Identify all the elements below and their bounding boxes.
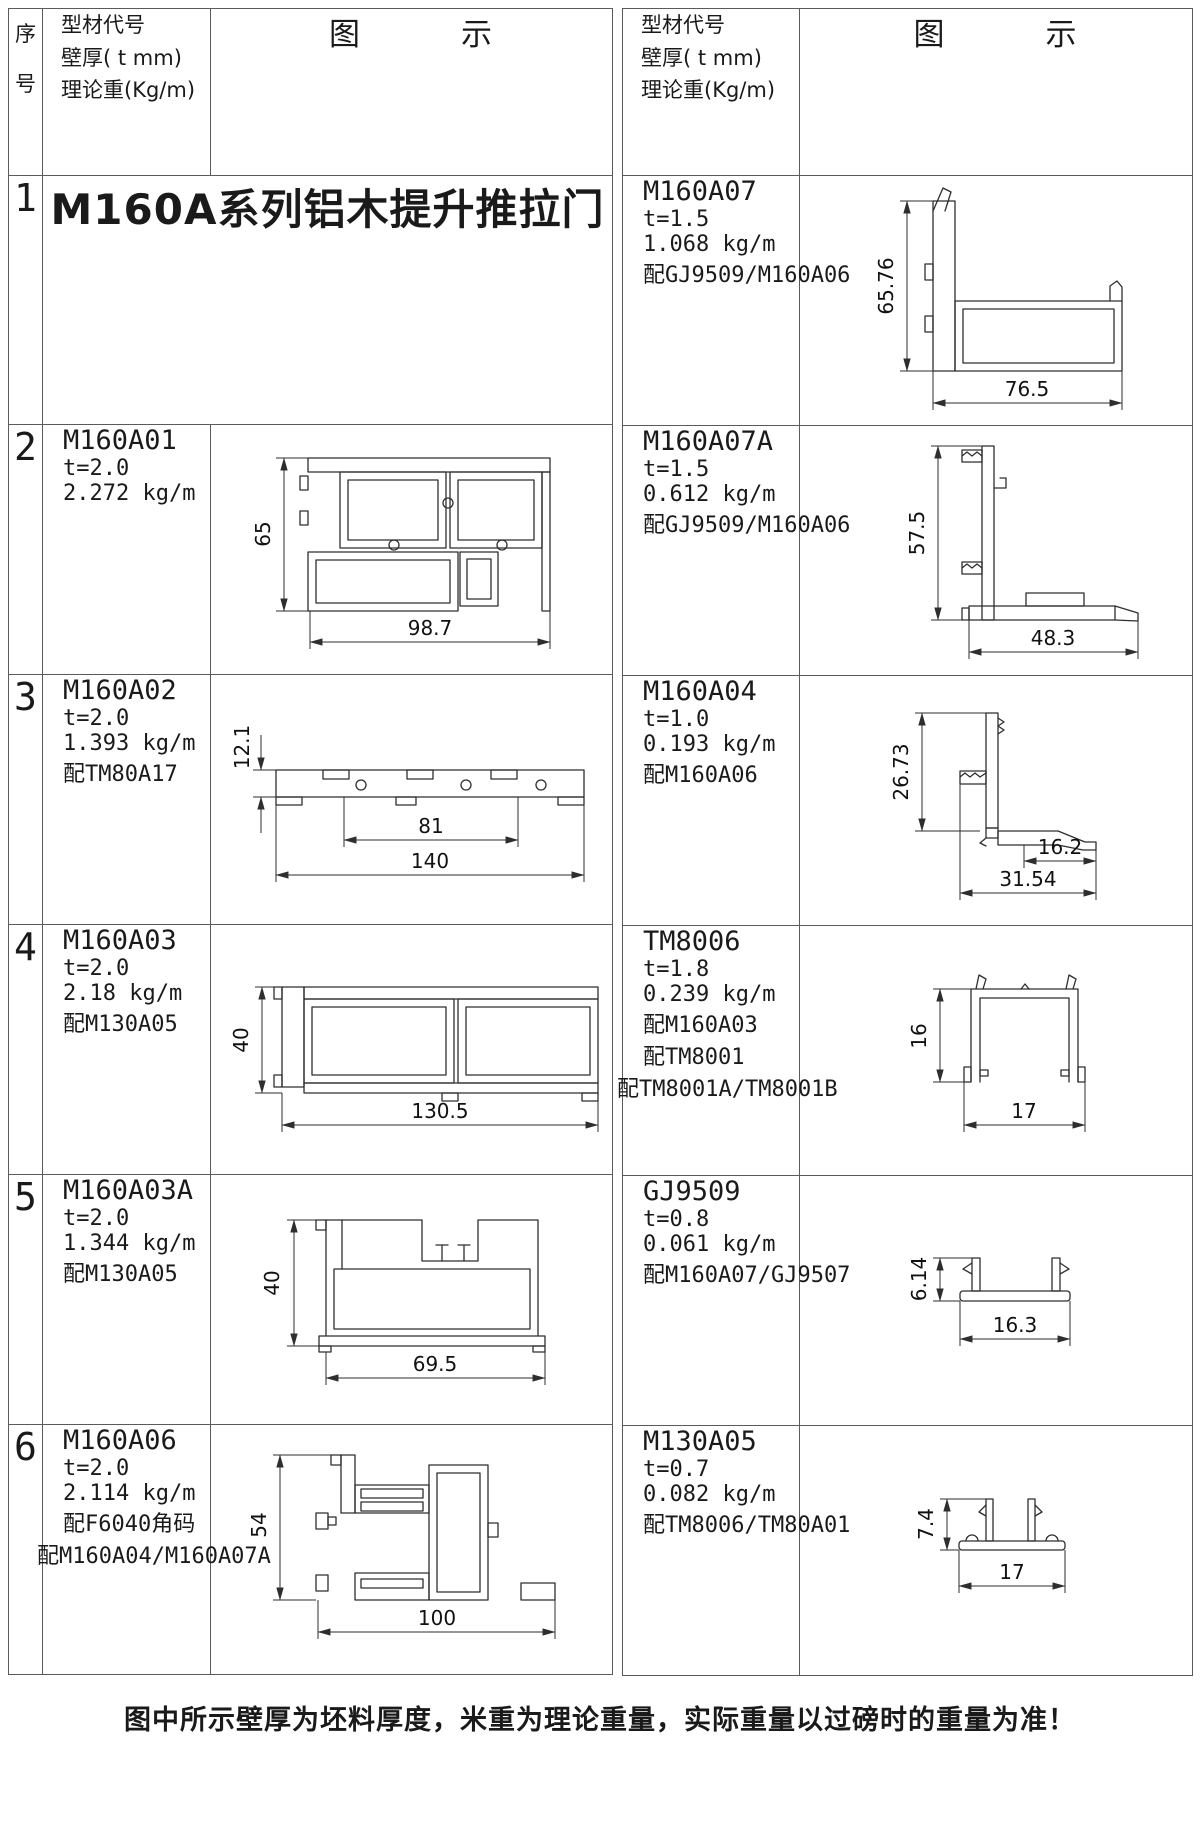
unit-weight: 2.18 kg/m: [43, 981, 182, 1006]
profile-code: GJ9509: [623, 1176, 741, 1207]
wall-thickness: t=1.8: [623, 957, 709, 982]
wall-thickness: t=0.8: [623, 1207, 709, 1232]
row-number: 1: [9, 176, 43, 425]
table-row: M160A07A t=1.5 0.612 kg/m 配GJ9509/M160A0…: [623, 426, 1193, 676]
table-row: 1 M160A系列铝木提升推拉门: [9, 176, 613, 425]
profile-diagram-cell: 40 69.5: [211, 1175, 613, 1425]
profile-code: M130A05: [623, 1426, 757, 1457]
wall-thickness: t=2.0: [43, 706, 129, 731]
profile-diagram-cell: 12.1 81 140: [211, 675, 613, 925]
series-title-cell: M160A系列铝木提升推拉门: [43, 176, 613, 425]
row-number: 5: [9, 1175, 43, 1425]
dim-height-label: 12.1: [230, 725, 254, 770]
unit-weight: 0.082 kg/m: [623, 1482, 775, 1507]
profile-diagram-cell: 6.14 16.3: [800, 1176, 1193, 1426]
profile-code: TM8006: [623, 926, 741, 957]
spec-header-line: 型材代号: [623, 9, 799, 42]
column-header-diagram: 图 示: [800, 9, 1193, 176]
profile-diagram-cell: 7.4 17: [800, 1426, 1193, 1676]
dim-height-label: 26.73: [889, 743, 913, 800]
table-header-row: 序号 型材代号 壁厚( t mm) 理论重(Kg/m) 图 示: [9, 9, 613, 176]
profile-code: M160A07: [623, 176, 757, 207]
column-header-diagram: 图 示: [211, 9, 613, 176]
profile-info-cell: M160A02 t=2.0 1.393 kg/m 配TM80A17: [43, 675, 211, 925]
profile-info-cell: M130A05 t=0.7 0.082 kg/m 配TM8006/TM80A01: [623, 1426, 800, 1676]
match-profiles: 配M160A07/GJ9507: [623, 1257, 850, 1289]
profile-code: M160A04: [623, 676, 757, 707]
table-row: 5 M160A03A t=2.0 1.344 kg/m 配M130A05: [9, 1175, 613, 1425]
dim-height-label: 16: [907, 1023, 931, 1048]
column-header-spec: 型材代号 壁厚( t mm) 理论重(Kg/m): [43, 9, 211, 176]
unit-weight: 2.114 kg/m: [43, 1481, 195, 1506]
row-number: 2: [9, 425, 43, 675]
profile-cross-section: [925, 188, 1122, 371]
dim-height-label: 6.14: [907, 1257, 931, 1302]
profile-info-cell: TM8006 t=1.8 0.239 kg/m 配M160A03 配TM8001…: [623, 926, 800, 1176]
wall-thickness: t=2.0: [43, 456, 129, 481]
dim-inner-width-label: 16.2: [1038, 835, 1083, 859]
dim-width-label: 69.5: [413, 1352, 458, 1376]
profile-diagram-cell: 16 17: [800, 926, 1193, 1176]
wall-thickness: t=2.0: [43, 1206, 129, 1231]
cross-section-drawing-m160a03: 40 130.5: [211, 925, 611, 1174]
table-row: M160A04 t=1.0 0.193 kg/m 配M160A06: [623, 676, 1193, 926]
match-profiles: 配TM8001: [623, 1039, 744, 1071]
profile-info-cell: M160A07 t=1.5 1.068 kg/m 配GJ9509/M160A06: [623, 176, 800, 426]
profile-spec-sheet: 序号 型材代号 壁厚( t mm) 理论重(Kg/m) 图 示 1 M160A系…: [0, 0, 1200, 1836]
profile-info-cell: GJ9509 t=0.8 0.061 kg/m 配M160A07/GJ9507: [623, 1176, 800, 1426]
cross-section-drawing-gj9509: 6.14 16.3: [800, 1176, 1191, 1425]
dim-width-label: 76.5: [1005, 377, 1050, 401]
profile-info-cell: M160A07A t=1.5 0.612 kg/m 配GJ9509/M160A0…: [623, 426, 800, 676]
profile-code: M160A07A: [623, 426, 773, 457]
column-header-spec: 型材代号 壁厚( t mm) 理论重(Kg/m): [623, 9, 800, 176]
unit-weight: 0.239 kg/m: [623, 982, 775, 1007]
dim-width-label: 17: [1011, 1099, 1036, 1123]
dim-height-label: 7.4: [914, 1508, 938, 1540]
unit-weight: 1.393 kg/m: [43, 731, 195, 756]
dim-width-label: 31.54: [999, 867, 1056, 891]
table-row: M160A07 t=1.5 1.068 kg/m 配GJ9509/M160A06: [623, 176, 1193, 426]
wall-thickness: t=0.7: [623, 1457, 709, 1482]
diagram-header-label: 图 示: [211, 9, 612, 54]
profile-diagram-cell: 65 98.7: [211, 425, 613, 675]
match-profiles: 配M160A04/M160A07A: [17, 1538, 271, 1570]
right-profile-table: 型材代号 壁厚( t mm) 理论重(Kg/m) 图 示 M160A07 t=1…: [622, 8, 1193, 1676]
row-number: 3: [9, 675, 43, 925]
left-profile-table: 序号 型材代号 壁厚( t mm) 理论重(Kg/m) 图 示 1 M160A系…: [8, 8, 613, 1675]
profile-code: M160A06: [43, 1425, 177, 1456]
profile-code: M160A03A: [43, 1175, 193, 1206]
dim-width-label: 17: [999, 1560, 1024, 1584]
dim-width-label: 16.3: [993, 1313, 1038, 1337]
profile-diagram-cell: 65.76 76.5: [800, 176, 1193, 426]
profile-diagram-cell: 57.5 48.3: [800, 426, 1193, 676]
spec-header-line: 壁厚( t mm): [623, 42, 799, 75]
match-profiles: 配M160A03: [623, 1007, 758, 1039]
dimension-lines: [273, 1455, 555, 1639]
profile-cross-section: [300, 458, 550, 611]
profile-code: M160A01: [43, 425, 177, 456]
dim-height-label: 65.76: [874, 257, 898, 314]
dimension-lines: [933, 989, 1085, 1132]
profile-cross-section: [276, 770, 584, 805]
profile-code: M160A03: [43, 925, 177, 956]
profile-diagram-cell: 26.73 16.2 31.54: [800, 676, 1193, 926]
table-header-row: 型材代号 壁厚( t mm) 理论重(Kg/m) 图 示: [623, 9, 1193, 176]
dim-width-label: 140: [411, 849, 449, 873]
dim-height-label: 57.5: [905, 511, 929, 556]
profile-cross-section: [960, 713, 1096, 850]
cross-section-drawing-m160a02: 12.1 81 140: [211, 675, 611, 924]
dim-height-label: 40: [229, 1027, 253, 1052]
dim-width-label: 48.3: [1031, 626, 1076, 650]
dim-height-label: 65: [251, 521, 275, 546]
table-row: M130A05 t=0.7 0.082 kg/m 配TM8006/TM80A01: [623, 1426, 1193, 1676]
profile-cross-section: [316, 1455, 555, 1600]
match-profiles: 配GJ9509/M160A06: [623, 507, 850, 539]
table-row: 2 M160A01 t=2.0 2.272 kg/m: [9, 425, 613, 675]
table-row: 4 M160A03 t=2.0 2.18 kg/m 配M130A05: [9, 925, 613, 1175]
cross-section-drawing-m130a05: 7.4 17: [800, 1426, 1191, 1675]
cross-section-drawing-tm8006: 16 17: [800, 926, 1191, 1175]
table-row: 3 M160A02 t=2.0 1.393 kg/m 配TM80A17: [9, 675, 613, 925]
cross-section-drawing-m160a06: 54 100: [211, 1425, 611, 1674]
profile-info-cell: M160A03A t=2.0 1.344 kg/m 配M130A05: [43, 1175, 211, 1425]
match-profiles: 配TM8006/TM80A01: [623, 1507, 850, 1539]
unit-weight: 1.068 kg/m: [623, 232, 775, 257]
profile-cross-section: [964, 975, 1085, 1082]
dim-width-label: 130.5: [411, 1099, 468, 1123]
seq-header-label: 序号: [13, 9, 39, 110]
column-header-seq: 序号: [9, 9, 43, 176]
profile-info-cell: M160A01 t=2.0 2.272 kg/m: [43, 425, 211, 675]
profile-cross-section: [316, 1220, 545, 1352]
dim-height-label: 54: [247, 1512, 271, 1537]
profile-cross-section: [959, 1499, 1065, 1550]
profile-cross-section: [274, 987, 598, 1101]
table-row: GJ9509 t=0.8 0.061 kg/m 配M160A07/GJ9507: [623, 1176, 1193, 1426]
table-row: 6 M160A06 t=2.0 2.114 kg/m 配F6040角码 配M16…: [9, 1425, 613, 1675]
series-title: M160A系列铝木提升推拉门: [43, 176, 612, 237]
wall-thickness: t=1.0: [623, 707, 709, 732]
diagram-header-label: 图 示: [800, 9, 1192, 54]
profile-code: M160A02: [43, 675, 177, 706]
spec-header-line: 型材代号: [43, 9, 210, 42]
profile-info-cell: M160A06 t=2.0 2.114 kg/m 配F6040角码 配M160A…: [43, 1425, 211, 1675]
dim-width-label: 100: [418, 1606, 456, 1630]
spec-header-line: 壁厚( t mm): [43, 42, 210, 75]
unit-weight: 0.193 kg/m: [623, 732, 775, 757]
wall-thickness: t=1.5: [623, 207, 709, 232]
match-profiles: 配F6040角码: [43, 1506, 195, 1538]
spec-header-line: 理论重(Kg/m): [43, 74, 210, 107]
match-profiles: 配M130A05: [43, 1256, 178, 1288]
dim-width-label: 98.7: [408, 616, 453, 640]
match-profiles: 配TM8001A/TM8001B: [597, 1071, 838, 1103]
profile-cross-section: [962, 446, 1138, 621]
wall-thickness: t=2.0: [43, 1456, 129, 1481]
profile-info-cell: M160A03 t=2.0 2.18 kg/m 配M130A05: [43, 925, 211, 1175]
profile-diagram-cell: 40 130.5: [211, 925, 613, 1175]
wall-thickness: t=2.0: [43, 956, 129, 981]
dim-inner-width-label: 81: [418, 814, 443, 838]
match-profiles: 配GJ9509/M160A06: [623, 257, 850, 289]
cross-section-drawing-m160a07: 65.76 76.5: [800, 176, 1191, 425]
unit-weight: 2.272 kg/m: [43, 481, 195, 506]
footer-note: 图中所示壁厚为坯料厚度，米重为理论重量，实际重量以过磅时的重量为准！: [0, 1698, 1200, 1737]
dim-height-label: 40: [260, 1270, 284, 1295]
table-row: TM8006 t=1.8 0.239 kg/m 配M160A03 配TM8001…: [623, 926, 1193, 1176]
unit-weight: 0.061 kg/m: [623, 1232, 775, 1257]
unit-weight: 1.344 kg/m: [43, 1231, 195, 1256]
profile-info-cell: M160A04 t=1.0 0.193 kg/m 配M160A06: [623, 676, 800, 926]
cross-section-drawing-m160a03a: 40 69.5: [211, 1175, 611, 1424]
match-profiles: 配M130A05: [43, 1006, 178, 1038]
wall-thickness: t=1.5: [623, 457, 709, 482]
cross-section-drawing-m160a07a: 57.5 48.3: [800, 426, 1191, 675]
row-number: 4: [9, 925, 43, 1175]
spec-header-line: 理论重(Kg/m): [623, 74, 799, 107]
cross-section-drawing-m160a04: 26.73 16.2 31.54: [800, 676, 1191, 925]
cross-section-drawing-m160a01: 65 98.7: [211, 425, 611, 674]
match-profiles: 配TM80A17: [43, 756, 178, 788]
profile-cross-section: [960, 1258, 1070, 1301]
unit-weight: 0.612 kg/m: [623, 482, 775, 507]
match-profiles: 配M160A06: [623, 757, 758, 789]
